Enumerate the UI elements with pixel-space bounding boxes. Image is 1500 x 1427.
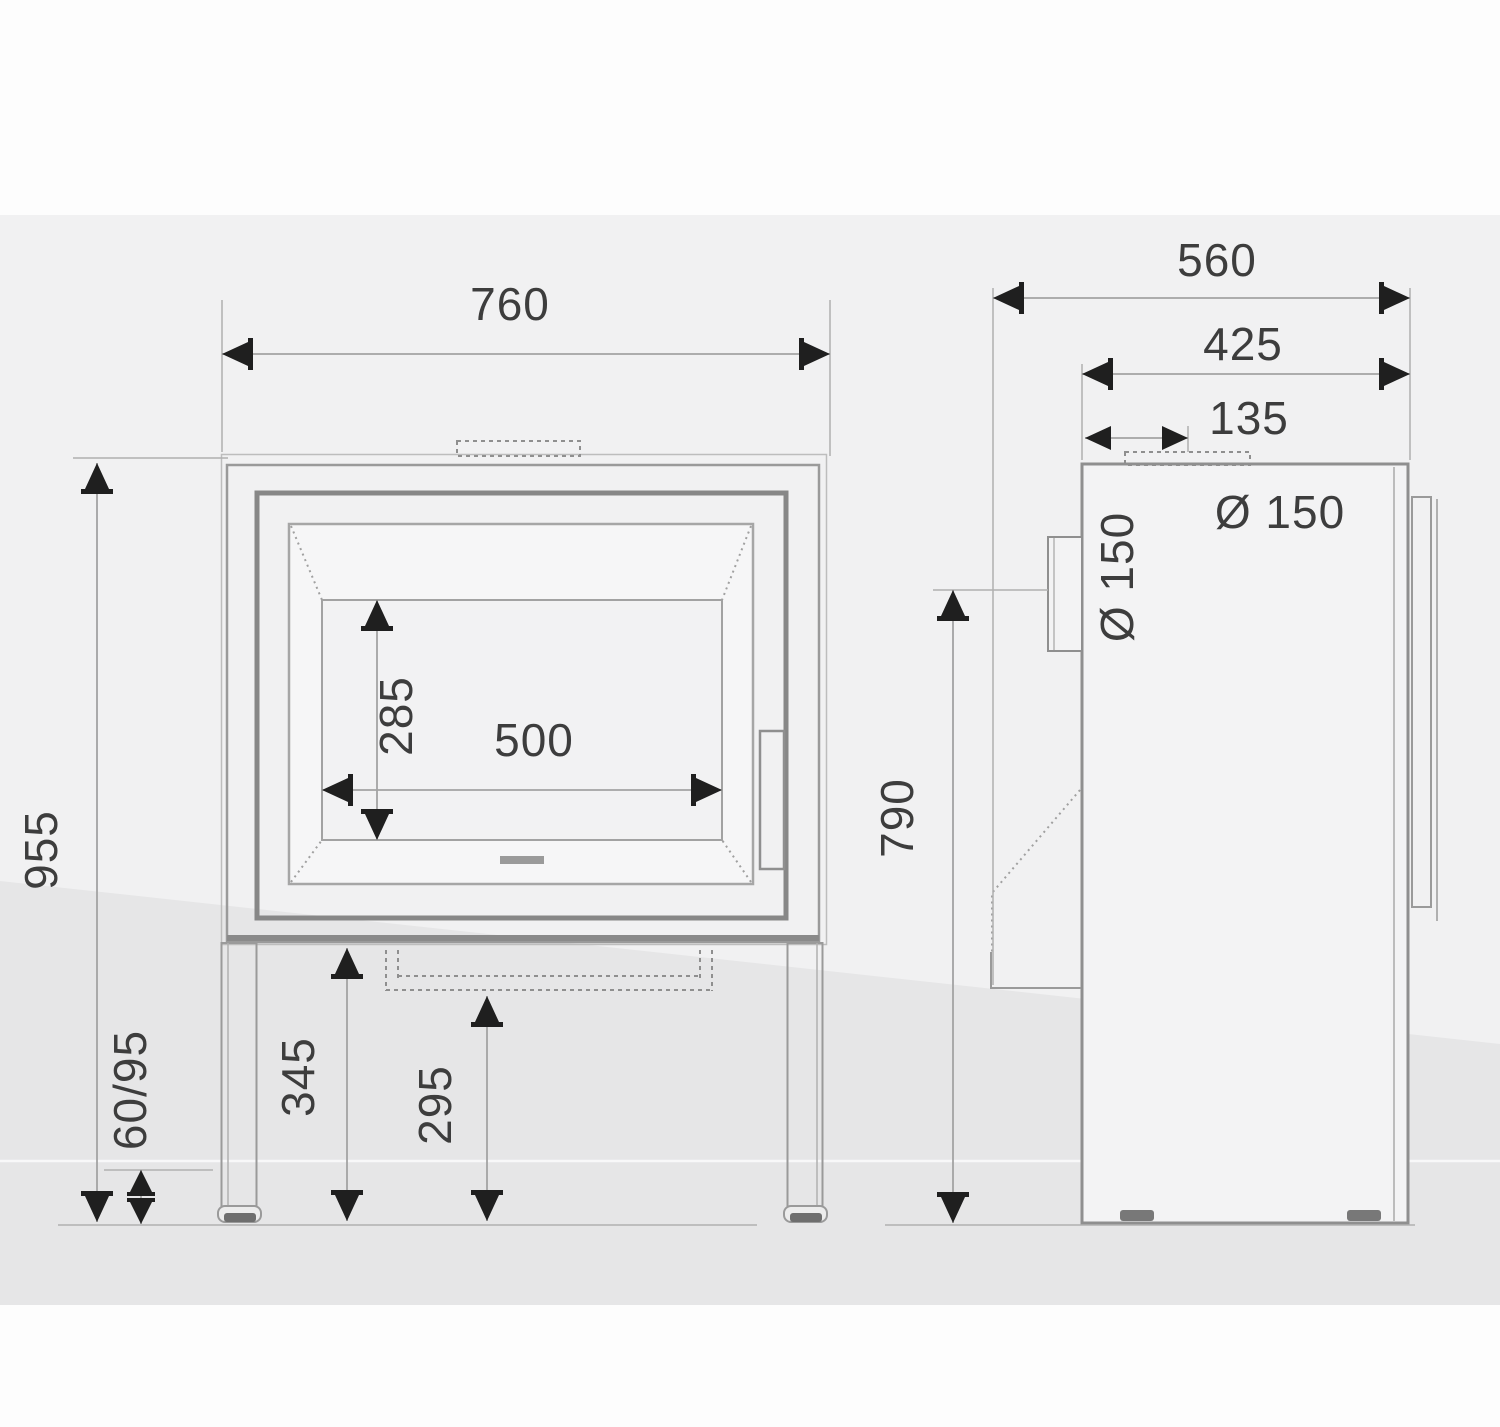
dim-label-top-flue-diameter: Ø 150 bbox=[1215, 486, 1345, 538]
stove-dimension-drawing-page: 760 955 60/95 285 500 345 295 bbox=[0, 0, 1500, 1427]
side-rear-flue-outlet bbox=[1048, 537, 1082, 651]
dim-label-135: 135 bbox=[1209, 392, 1289, 444]
dim-top-flue-diameter: Ø 150 bbox=[1215, 486, 1345, 538]
dim-label-955: 955 bbox=[15, 810, 67, 890]
dim-label-295: 295 bbox=[409, 1065, 461, 1145]
dim-label-285: 285 bbox=[370, 676, 422, 756]
dim-label-500: 500 bbox=[494, 714, 574, 766]
technical-drawing: 760 955 60/95 285 500 345 295 bbox=[0, 0, 1500, 1427]
side-door-panel bbox=[1412, 497, 1431, 907]
dim-label-560: 560 bbox=[1177, 234, 1257, 286]
dim-label-790: 790 bbox=[871, 778, 923, 858]
side-rear-foot-pad bbox=[1120, 1210, 1154, 1221]
dim-label-345: 345 bbox=[272, 1037, 324, 1117]
front-left-foot-pad bbox=[224, 1213, 256, 1222]
front-right-foot-pad bbox=[790, 1213, 822, 1222]
dim-label-425: 425 bbox=[1203, 318, 1283, 370]
front-door-handle bbox=[760, 731, 784, 869]
dim-label-rear-flue-diameter: Ø 150 bbox=[1091, 512, 1143, 642]
dim-label-60-95: 60/95 bbox=[104, 1030, 156, 1150]
front-door-latch bbox=[500, 856, 544, 864]
side-front-foot-pad bbox=[1347, 1210, 1381, 1221]
dim-label-760: 760 bbox=[470, 278, 550, 330]
dim-rear-flue-diameter: Ø 150 bbox=[1091, 512, 1143, 642]
